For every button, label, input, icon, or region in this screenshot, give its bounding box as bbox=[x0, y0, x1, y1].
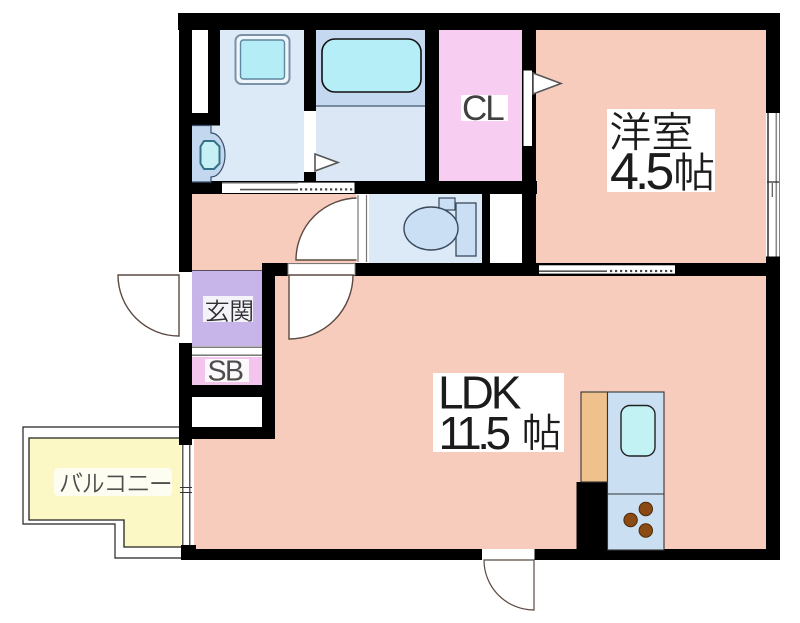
svg-text:CL: CL bbox=[462, 89, 504, 128]
svg-text:4.5: 4.5 bbox=[610, 143, 672, 201]
svg-text:SB: SB bbox=[208, 356, 244, 388]
svg-text:11.5: 11.5 bbox=[439, 407, 510, 459]
